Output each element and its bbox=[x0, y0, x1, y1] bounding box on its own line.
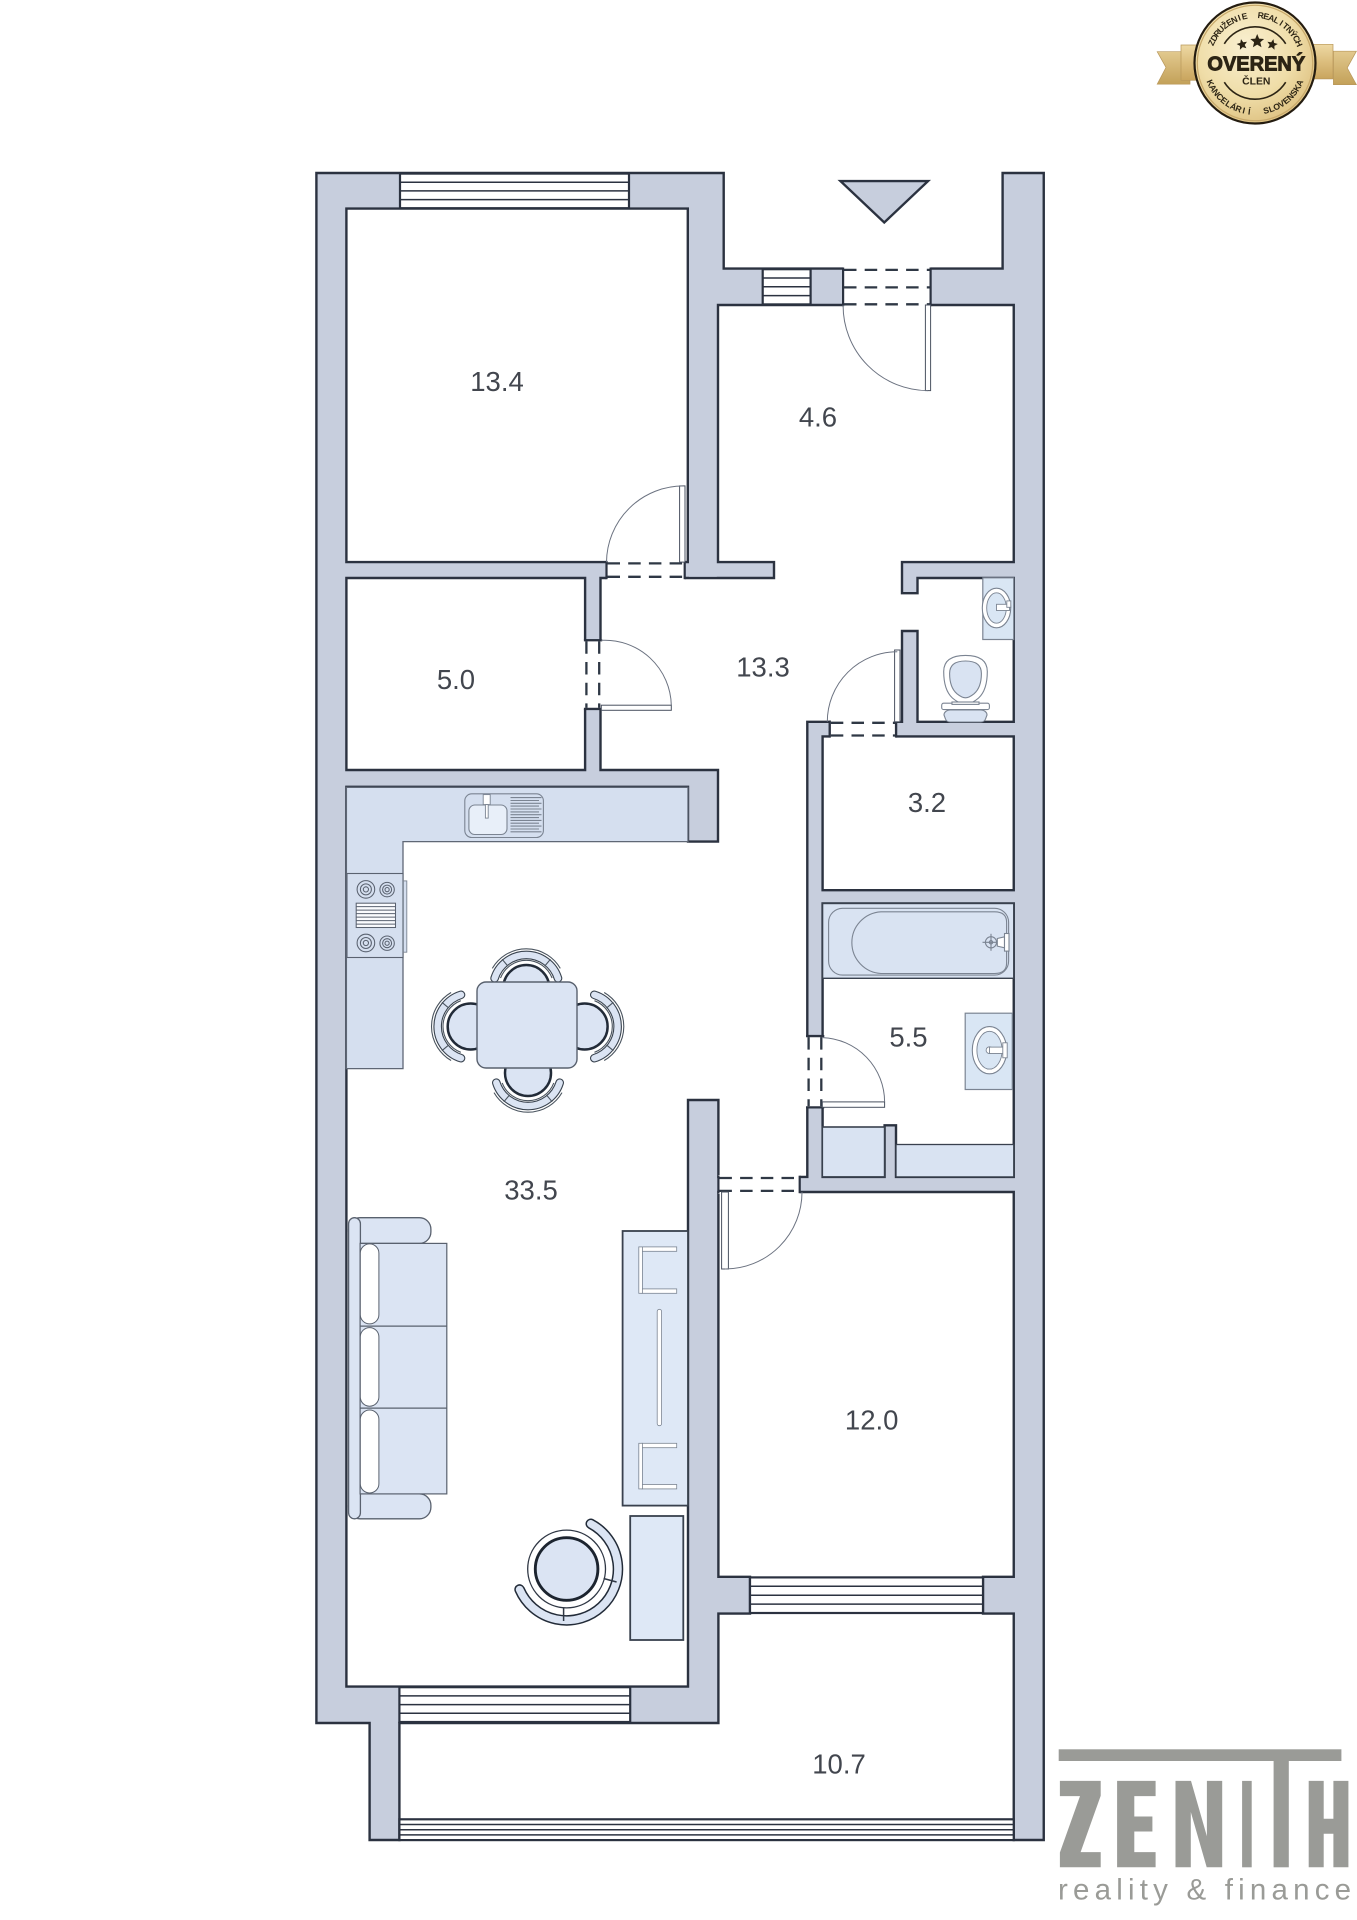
svg-text:reality & finance: reality & finance bbox=[1058, 1874, 1356, 1907]
svg-text:5.0: 5.0 bbox=[437, 664, 475, 695]
svg-text:33.5: 33.5 bbox=[504, 1175, 558, 1206]
svg-text:OVERENÝ: OVERENÝ bbox=[1207, 52, 1305, 76]
svg-text:13.4: 13.4 bbox=[470, 366, 524, 397]
svg-text:5.5: 5.5 bbox=[889, 1021, 927, 1052]
svg-text:12.0: 12.0 bbox=[845, 1405, 899, 1436]
svg-text:ČLEN: ČLEN bbox=[1242, 74, 1270, 87]
svg-text:10.7: 10.7 bbox=[812, 1749, 866, 1780]
svg-text:13.3: 13.3 bbox=[736, 652, 790, 683]
svg-text:4.6: 4.6 bbox=[799, 402, 837, 433]
svg-text:3.2: 3.2 bbox=[908, 787, 946, 818]
